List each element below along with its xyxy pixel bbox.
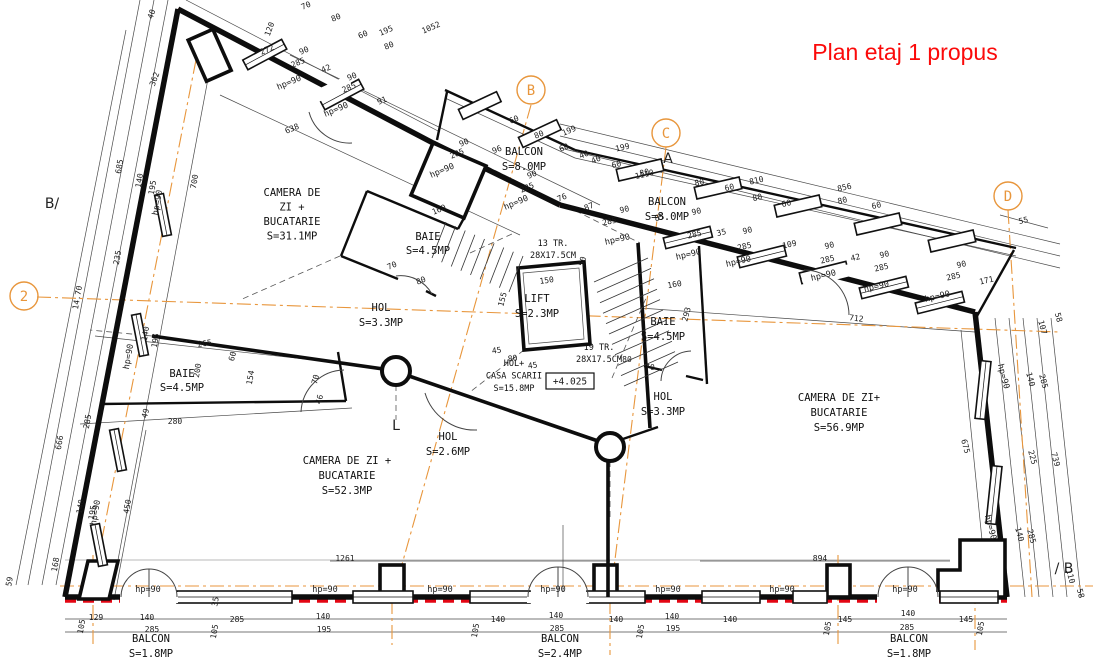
dimension-label: 105: [209, 623, 220, 639]
dimension-label: 199: [561, 124, 578, 138]
dimension-label: 91: [376, 95, 389, 107]
parapet-height-label: hp=90: [995, 363, 1011, 390]
dimension-label: 129: [89, 613, 104, 622]
dimension-label: 80: [837, 195, 849, 206]
grid-marker-letter-C: C: [662, 126, 670, 142]
room-label-hol-3: HOL: [654, 391, 673, 403]
room-label-hol-1: S=3.3MP: [359, 317, 403, 329]
parapet-height-label: hp=90: [312, 585, 338, 595]
dimension-label: 80: [622, 355, 632, 364]
dimension-label: 265: [197, 338, 213, 349]
dimension-label: 50: [577, 255, 588, 267]
dimension-label: 140: [1024, 371, 1036, 387]
dimension-label: 35: [210, 596, 221, 607]
dimension-label: 140: [901, 609, 916, 618]
room-label-hol-3: S=3.3MP: [641, 406, 685, 418]
dimension-label: 894: [813, 554, 828, 563]
grid-marker-letter-B: B: [527, 83, 535, 99]
dimension-label: 195: [666, 624, 681, 633]
dimension-label: 60: [227, 350, 238, 362]
room-label-balcon-3: BALCON: [132, 633, 170, 645]
room-label-stairs-13: 28X17.5CM: [530, 251, 576, 261]
dimension-label: 450: [122, 498, 133, 514]
dimension-label: 80: [415, 275, 428, 287]
stair-tread: [471, 239, 485, 275]
dimension-label: 362: [148, 71, 161, 88]
room-label-stairs-19: 28X17.5CM: [576, 355, 622, 365]
interior-walls: [100, 191, 707, 597]
room-label-balcon-2: S=8.0MP: [645, 211, 689, 223]
room-label-stairs-19: 19 TR.: [584, 343, 615, 353]
stair-tread: [597, 268, 651, 292]
floor-plan-drawing: +4.025 Plan etaj 1 propus 27210521957080…: [0, 0, 1093, 661]
dimension-label: 107: [1036, 319, 1048, 335]
dimension-label: 675: [959, 438, 971, 454]
room-label-stairs-13: 13 TR.: [538, 239, 569, 249]
dimension-label: 58: [1075, 588, 1086, 600]
dimension-label: 285: [1025, 528, 1037, 544]
dimension-label: 195: [317, 625, 332, 634]
dimension-label: 700: [189, 173, 200, 189]
dimension-label: 155: [496, 291, 508, 307]
dimension-label: 285: [945, 271, 961, 283]
room-label-balcon-5: BALCON: [890, 633, 928, 645]
parapet-height-label: hp=90: [675, 247, 702, 263]
dimension-label: 140: [609, 615, 624, 624]
dimension-label: 285: [736, 241, 752, 253]
dimension-label: 55: [1018, 215, 1030, 226]
room-label-camera-zi-1: ZI +: [279, 202, 304, 214]
dimension-label: 145: [838, 615, 853, 624]
dimension-label: 46: [314, 393, 325, 405]
room-label-camera-zi-1: CAMERA DE: [264, 187, 321, 199]
room-label-baie-3: S=4.5MP: [641, 331, 685, 343]
dimension-label: 140: [723, 615, 738, 624]
parapet-height-label: hp=90: [655, 585, 681, 595]
room-label-hol-casa-scarii: S=15.8MP: [494, 384, 535, 394]
stair-tread: [499, 252, 513, 288]
room-label-camera-zi-2: CAMERA DE ZI +: [303, 455, 392, 467]
floor-plan-canvas: +4.025 Plan etaj 1 propus 27210521957080…: [0, 0, 1093, 661]
room-label-balcon-3: S=1.8MP: [129, 648, 173, 660]
room-label-camera-zi-1: BUCATARIE: [264, 216, 321, 228]
dimension-label: 80: [752, 192, 764, 203]
dimension-label: 140: [491, 615, 506, 624]
dimension-label: 154: [245, 369, 256, 385]
room-label-balcon-1: BALCON: [505, 146, 543, 158]
dimension-label: 109: [781, 239, 797, 251]
dimension-label: 285: [290, 56, 307, 70]
stair-tread: [480, 243, 494, 279]
dimension-label: 70: [300, 0, 313, 12]
dimension-label: 42: [850, 252, 862, 263]
dimension-label: 285: [82, 413, 93, 429]
dimension-label: 80: [383, 40, 396, 52]
dimension-label: 739: [1049, 451, 1061, 467]
dimension-label: 45: [527, 360, 538, 370]
dimension-label: 285: [230, 615, 245, 624]
dimension-label: 293: [680, 306, 692, 322]
dimension-label: 195: [150, 332, 161, 348]
dimension-label: 90: [956, 259, 968, 270]
grid-marker-letter-2: 2: [20, 289, 28, 305]
dimension-label: 285: [550, 624, 565, 633]
dimension-label: 35: [716, 227, 728, 238]
dimension-label: 280: [168, 417, 183, 426]
parapet-height-label: hp=90: [275, 74, 302, 93]
dimension-label: 140: [140, 613, 155, 622]
dimension-label: 140: [549, 611, 564, 620]
room-label-camera-zi-1: S=31.1MP: [267, 231, 318, 243]
room-label-camera-zi-3: BUCATARIE: [811, 407, 868, 419]
dimension-label: 14.70: [71, 285, 84, 310]
dimension-label: 145: [959, 615, 974, 624]
dimension-label: 856: [836, 182, 852, 194]
stair-tread: [461, 235, 475, 271]
parapet-height-label: hp=90: [122, 343, 136, 370]
grid-marker-letter-D: D: [1004, 189, 1012, 205]
dimension-label: 59: [4, 576, 15, 587]
parapet-height-label: hp=90: [725, 254, 752, 270]
dimension-label: 90: [691, 206, 703, 217]
room-label-hol-1: HOL: [372, 302, 391, 314]
dimension-label: 42: [320, 63, 333, 75]
dimension-label: 199: [614, 142, 630, 154]
stair-tread: [451, 231, 465, 267]
dimension-label: 140: [316, 612, 331, 621]
dimension-label: 45: [491, 345, 502, 355]
plan-title: Plan etaj 1 propus: [812, 39, 997, 65]
dimension-label: 140: [75, 498, 86, 514]
room-label-baie-1: BAIE: [415, 231, 440, 243]
dimension-label: 666: [54, 434, 65, 450]
dimension-label: 712: [849, 313, 865, 324]
room-label-lift: S=2.3MP: [515, 308, 559, 320]
dimension-label: 171: [978, 275, 994, 287]
room-label-camera-zi-3: CAMERA DE ZI+: [798, 392, 880, 404]
dimension-label: 285: [873, 262, 889, 274]
parapet-height-label: hp=90: [502, 194, 529, 213]
dimension-label: 80: [330, 12, 343, 24]
dimension-label: 58: [1053, 312, 1064, 324]
room-label-hol-2: HOL: [439, 431, 458, 443]
room-label-baie-2: S=4.5MP: [160, 382, 204, 394]
dimension-label: 235: [112, 249, 123, 265]
room-label-balcon-5: S=1.8MP: [887, 648, 931, 660]
dimension-label: 70: [310, 373, 321, 385]
dimension-label: 60: [357, 29, 370, 41]
dimension-label: 285: [1037, 373, 1049, 389]
parapet-height-label: hp=90: [427, 585, 453, 595]
dimension-label: 168: [50, 556, 61, 572]
stair-tread: [603, 289, 657, 313]
room-label-balcon-2: BALCON: [648, 196, 686, 208]
dimension-label: 70: [386, 260, 399, 272]
dimension-label: 195: [378, 24, 395, 38]
dimension-label: 90: [879, 249, 891, 260]
dimension-label: 76: [556, 192, 569, 204]
room-label-hol-casa-scarii: CASA SCARII: [486, 372, 542, 382]
section-marker-A: A: [663, 151, 673, 167]
dimension-label: 105: [470, 622, 481, 638]
section-marker-B: B/: [45, 196, 60, 212]
dimension-label: 120: [263, 21, 276, 38]
dimension-label: 225: [1026, 449, 1038, 465]
parapet-height-label: hp=90: [540, 585, 566, 595]
dimension-label: 49: [140, 407, 151, 419]
dimension-label: 638: [284, 122, 301, 136]
dimension-label: 285: [601, 216, 617, 228]
dimension-label: 160: [667, 279, 683, 290]
room-label-balcon-4: S=2.4MP: [538, 648, 582, 660]
room-label-hol-casa-scarii: HOL+: [504, 359, 524, 369]
dimension-label: 96: [491, 144, 504, 156]
dimension-label: 685: [114, 158, 125, 174]
room-label-balcon-4: BALCON: [541, 633, 579, 645]
room-label-baie-1: S=4.5MP: [406, 245, 450, 257]
dimension-label: 40: [146, 8, 158, 20]
dimension-label: 1052: [420, 20, 441, 36]
dimension-label: 1261: [335, 554, 354, 563]
elevation-marker-text: +4.025: [553, 377, 587, 388]
parapet-height-label: hp=90: [89, 499, 103, 526]
dimension-label: 90: [298, 45, 311, 57]
room-label-camera-zi-3: S=56.9MP: [814, 422, 865, 434]
room-label-camera-zi-2: S=52.3MP: [322, 485, 373, 497]
dimension-label: 105: [635, 623, 646, 639]
room-label-balcon-1: S=8.0MP: [502, 161, 546, 173]
dimension-label: 285: [900, 623, 915, 632]
dimension-label: 90: [619, 204, 631, 215]
room-label-camera-zi-2: BUCATARIE: [319, 470, 376, 482]
dimension-label: 90: [742, 225, 754, 236]
section-marker-B: / B: [1055, 561, 1074, 577]
room-label-baie-3: BAIE: [650, 316, 675, 328]
parapet-height-label: hp=90: [769, 585, 795, 595]
dimension-label: 140: [665, 612, 680, 621]
dimension-label: 105: [975, 620, 986, 636]
parapet-height-label: hp=90: [604, 232, 631, 248]
room-label-lift: LIFT: [524, 293, 550, 305]
section-marker-L: L: [392, 418, 400, 434]
parapet-height-label: hp=90: [135, 585, 161, 595]
dimension-label: 70: [645, 363, 655, 372]
room-label-baie-2: BAIE: [169, 368, 194, 380]
stair-tread: [490, 248, 504, 284]
parapet-height-label: hp=90: [892, 585, 918, 595]
dimension-label: 90: [824, 240, 836, 251]
dimension-label: 140: [1013, 526, 1025, 542]
dimension-label: 60: [871, 200, 883, 211]
dimension-label: 140: [140, 325, 151, 341]
room-label-hol-2: S=2.6MP: [426, 446, 470, 458]
dimension-label: 105: [822, 620, 833, 636]
